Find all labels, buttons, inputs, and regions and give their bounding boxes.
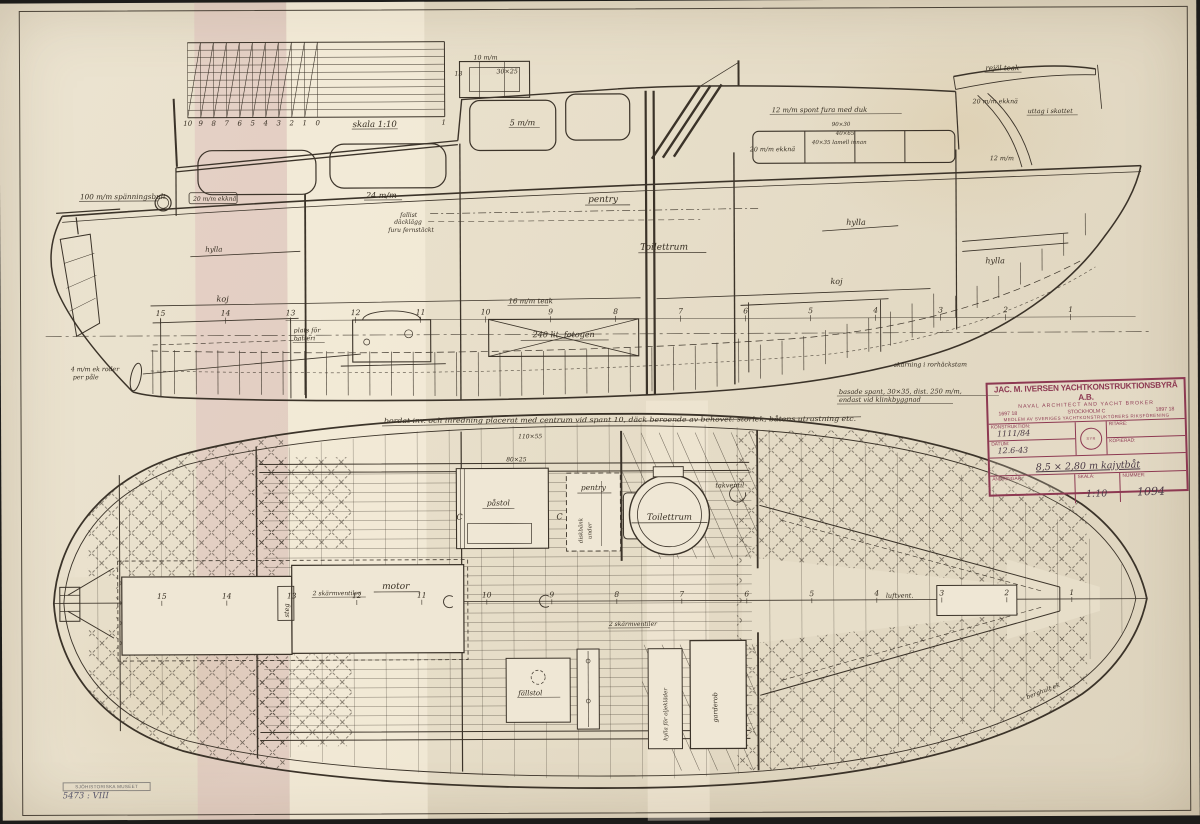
hull-sheer-line	[62, 166, 1141, 217]
plan-bulkhead-toilet	[621, 431, 622, 561]
field-kopierad: KOPIERAD:	[1107, 435, 1185, 454]
station-number-profile: 4	[872, 306, 878, 315]
fwd-berth	[741, 299, 889, 373]
window-mullions	[805, 131, 905, 163]
label-spant2: endast vid klinkbyggnad	[839, 396, 921, 404]
label-d4065: 40×65	[835, 131, 855, 137]
station-number-plan: 10	[482, 590, 492, 599]
label-uttag: uttag i skottet	[1028, 108, 1074, 115]
saloon-roof	[458, 89, 618, 141]
wheelhouse-roof	[618, 85, 956, 93]
label-ekkna-bow: 20 m/m ekknä	[972, 98, 1019, 105]
label-garderob: garderob	[711, 692, 719, 722]
label-roder: 4 m/m ek roder	[70, 366, 120, 373]
station-number-profile: 12	[351, 308, 361, 317]
station-number-plan: 5	[809, 589, 814, 598]
datum-value: 12.6-43	[997, 447, 1028, 457]
museum-accession-stamp: SJÖHISTORISKA MUSEET 5473 : VIII	[63, 782, 151, 801]
rudder-blade	[60, 234, 99, 336]
skala-value: 1:10	[1086, 488, 1108, 500]
label-d4035: 40×35 lamell innan	[811, 140, 867, 146]
blueprint-paper: 1098765432101 skala 1:10	[0, 0, 1200, 821]
label-steg: steg	[283, 603, 291, 617]
ruler-number: 7	[224, 120, 229, 128]
station-datum-line	[286, 317, 1136, 321]
label-ventiler-mid: 2 skärmventiler	[608, 621, 658, 628]
ruler-number: 10	[183, 120, 192, 128]
ruler-line	[188, 79, 445, 80]
ruler-number: 0	[315, 119, 320, 127]
rudder-stock	[76, 217, 78, 234]
skylight-lines	[479, 61, 504, 97]
stemhead-detail-lower	[954, 69, 1096, 90]
station-number-plan: 1	[1069, 588, 1074, 597]
label-skarning: skärning i rorhäckstam	[894, 361, 967, 368]
station-number-profile: 7	[678, 307, 683, 316]
station-number-profile: 9	[548, 307, 553, 316]
ruler-number: 3	[276, 119, 281, 127]
ruler-line	[187, 57, 444, 58]
label-diskbank: diskbänk	[578, 517, 584, 543]
bulkhead	[956, 149, 957, 329]
label-motor: motor	[382, 582, 410, 592]
museum-stamp-text: SJÖHISTORISKA MUSEET	[63, 782, 151, 791]
label-luftvent: luftvent.	[886, 592, 914, 600]
saloon-window	[566, 94, 630, 140]
field-andringar: ÄNDRINGAR:	[990, 474, 1076, 505]
station-number-profile: 5	[808, 306, 813, 315]
cabin-window	[198, 150, 316, 195]
ruler-number: 6	[237, 120, 242, 128]
label-tank: 240 lit. fotogen	[532, 330, 595, 339]
label-planking24: 24 m/m	[365, 191, 397, 200]
label-hylla-aft: hylla	[205, 246, 222, 254]
engine-top	[341, 311, 446, 366]
label-hylla-fwd: hylla	[985, 256, 1005, 265]
propeller-shaft	[143, 354, 361, 374]
aft-mast	[174, 99, 177, 167]
label-spanningsbult: 100 m/m spänningsbult	[80, 192, 166, 201]
label-batteri2: batteri	[294, 335, 316, 342]
title-block: JAC. M. IVERSEN YACHTKONSTRUKTIONSBYRÅ A…	[986, 377, 1189, 497]
mast-stay	[699, 62, 738, 86]
ruler-line	[188, 109, 445, 110]
label-d9030: 90×30	[832, 122, 851, 128]
label-pentry-profile: pentry	[588, 195, 619, 205]
deck-leader	[430, 208, 760, 213]
aft-berth-front	[153, 340, 299, 345]
label-section-c1: C	[456, 513, 462, 522]
label-w3025: 30×25	[497, 68, 518, 75]
label-hylla-mid: hylla	[846, 218, 866, 227]
scale-ruler: 1098765432101 skala 1:10	[183, 42, 446, 131]
field-nummer: NUMMER: 1094	[1120, 471, 1187, 502]
cabin-window	[330, 144, 446, 189]
label-section-c2: C	[556, 512, 562, 521]
station-number-plan: 2	[1003, 588, 1009, 597]
station-number-plan: 13	[287, 591, 297, 600]
stemhead-drop	[1098, 65, 1102, 109]
label-w12: 12 m/m	[990, 155, 1014, 162]
wheelhouse-front-post	[956, 91, 959, 149]
label-toilettrum-plan: Toilettrum	[647, 513, 692, 523]
plan-view: 151413121110987654321 motor 2 skärmventi…	[51, 412, 1148, 791]
label-batteri1: plats för	[294, 327, 322, 334]
label-ventiler-aft: 2 skärmventiler	[312, 590, 362, 597]
nummer-value: 1094	[1137, 485, 1165, 499]
label-pale: per påle	[73, 374, 99, 381]
station-number-profile: 11	[416, 308, 426, 317]
label-w13: 13	[455, 71, 463, 78]
label-construction-note: bordat inv. och inredning placerat med c…	[384, 414, 856, 425]
windshield-frame	[652, 84, 722, 158]
ruler-line	[187, 64, 444, 65]
label-dacklagg: däcklägg	[394, 219, 422, 226]
field-skala: SKALA: 1:10	[1075, 473, 1121, 503]
label-spant1: basade spant, 30×35, dist. 250 m/m,	[839, 387, 962, 396]
ruler-line	[188, 94, 445, 95]
label-pastol: påstol	[487, 498, 511, 507]
label-pentry-plan: pentry	[581, 483, 607, 492]
station-number-plan: 4	[873, 589, 879, 598]
label-w5: 5 m/m	[510, 118, 536, 127]
label-ekkna-boxed: 20 m/m ekknä	[192, 196, 237, 203]
station-number-plan: 6	[744, 589, 749, 598]
label-toilettrum-profile: Toilettrum	[640, 243, 688, 253]
skylight-detail	[459, 61, 529, 97]
station-number-profile: 15	[156, 309, 166, 318]
photo-scene: 1098765432101 skala 1:10	[0, 0, 1200, 820]
label-oljeklader: hylla för oljekläder	[663, 688, 669, 741]
ruler-line	[188, 72, 445, 73]
label-dim11055: 110×55	[518, 433, 542, 440]
label-w10: 10 m/m	[473, 54, 497, 61]
field-datum: DATUM: 12.6-43	[989, 438, 1075, 457]
label-under: under	[587, 522, 593, 539]
label-sponta: 12 m/m spont fura med duk	[772, 106, 868, 114]
station-number-plan: 15	[157, 592, 167, 601]
label-ekkna-mid: 20 m/m ekknä	[749, 146, 796, 153]
ruler-number: 5	[250, 119, 255, 127]
station-number-plan: 14	[222, 592, 232, 601]
station-number-profile: 13	[286, 308, 296, 317]
aft-cabin-roof	[176, 141, 458, 172]
station-number-plan: 9	[549, 590, 554, 599]
label-rejal: rejäl teak	[985, 64, 1019, 72]
ruler-line	[188, 117, 445, 118]
station-number-profile: 14	[221, 309, 231, 318]
label-fallstol: fällstol	[517, 689, 542, 697]
association-seal: SYR	[1076, 421, 1108, 455]
shelf-lines	[190, 225, 1068, 257]
station-number-plan: 3	[939, 588, 944, 597]
label-teak: 16 m/m teak	[509, 297, 553, 305]
station-number-profile: 2	[1002, 305, 1008, 314]
ruler-line	[187, 42, 444, 43]
bulkhead	[460, 144, 461, 400]
station-number-profile: 3	[938, 305, 943, 314]
station-number-profile: 1	[1068, 305, 1073, 314]
hull-keel-line	[132, 166, 1142, 402]
ruler-number: 8	[211, 120, 216, 128]
ruler-line	[188, 87, 445, 88]
ruler-number: 9	[198, 120, 203, 128]
bulkhead	[305, 194, 306, 398]
label-takventil: takventil	[715, 481, 744, 489]
label-koj-aft: koj	[216, 295, 229, 304]
engine-box	[292, 565, 464, 654]
profile-view: 151413121110987654321 100 m/m spänningsb…	[44, 52, 1151, 428]
museum-accession-number: 5473 : VIII	[63, 791, 151, 801]
label-dim8025: 80×25	[506, 456, 527, 463]
station-number-profile: 8	[613, 307, 618, 316]
engine-detail	[405, 330, 413, 338]
engine-detail	[364, 339, 370, 345]
station-number-plan: 7	[679, 590, 684, 599]
engine-box-aft	[122, 576, 292, 655]
wc-fitting	[653, 467, 683, 477]
ruler-line	[188, 102, 445, 103]
rudder-hatching	[64, 253, 96, 311]
konstruktion-value: 1111/84	[997, 430, 1030, 440]
ruler-number: 4	[262, 119, 268, 127]
label-koj-fwd: koj	[830, 277, 843, 286]
ruler-number: 2	[288, 119, 294, 127]
deck-leader2	[428, 220, 700, 222]
station-number-profile: 10	[481, 307, 491, 316]
station-number-profile: 6	[743, 306, 748, 315]
label-fallist: fallist	[399, 212, 418, 219]
scale-label: skala 1:10	[353, 120, 398, 130]
station-number-plan: 8	[614, 590, 619, 599]
ruler-number: 1	[302, 119, 307, 127]
label-fernstackt: furu fernstäckt	[387, 227, 434, 234]
propeller	[128, 362, 143, 391]
ruler-end-number: 1	[441, 119, 446, 127]
